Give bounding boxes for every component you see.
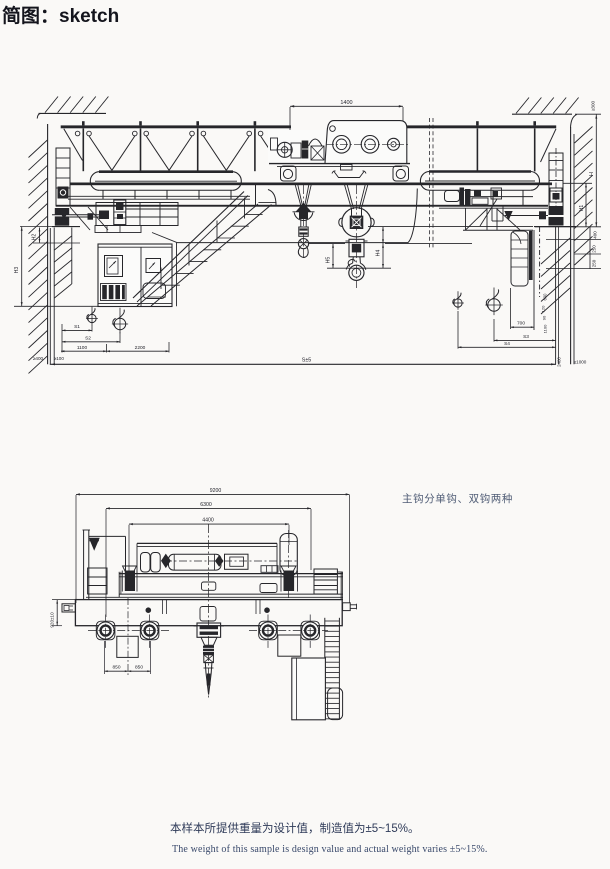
svg-text:2200: 2200 <box>135 345 146 351</box>
svg-text:90: 90 <box>542 315 547 320</box>
svg-text:S3: S3 <box>523 334 529 340</box>
svg-text:850: 850 <box>135 665 143 671</box>
svg-text:≥1000: ≥1000 <box>574 359 587 364</box>
svg-text:H1: H1 <box>579 205 585 212</box>
svg-text:S1: S1 <box>74 324 80 330</box>
svg-text:S2: S2 <box>85 335 91 341</box>
svg-text:1100: 1100 <box>543 324 548 333</box>
svg-text:S±5: S±5 <box>302 358 312 364</box>
svg-text:4400: 4400 <box>202 518 214 524</box>
svg-text:H4: H4 <box>376 250 382 257</box>
svg-text:850: 850 <box>112 665 120 671</box>
svg-text:S4: S4 <box>504 341 510 347</box>
svg-text:6300: 6300 <box>200 502 212 508</box>
svg-text:≥300: ≥300 <box>591 100 596 111</box>
svg-text:250: 250 <box>592 259 597 267</box>
svg-text:9200: 9200 <box>210 488 222 494</box>
svg-text:主钩分单钩、双钩两种: 主钩分单钩、双钩两种 <box>402 492 513 505</box>
svg-text:H2: H2 <box>32 234 38 241</box>
svg-text:H3: H3 <box>14 267 20 274</box>
svg-text:本样本所提供重量为设计值，制造值为±5~15%。: 本样本所提供重量为设计值，制造值为±5~15%。 <box>170 821 419 835</box>
svg-text:700: 700 <box>517 321 525 327</box>
svg-text:≥100: ≥100 <box>54 356 65 361</box>
svg-text:≥400: ≥400 <box>33 356 44 361</box>
svg-text:250: 250 <box>592 245 597 253</box>
svg-text:920±10: 920±10 <box>50 612 55 628</box>
svg-text:H5: H5 <box>326 257 332 264</box>
svg-text:1400: 1400 <box>340 100 352 106</box>
svg-text:1100: 1100 <box>77 345 88 351</box>
svg-text:H: H <box>589 172 595 176</box>
svg-text:The weight of this sample is: The weight of this sample is design valu… <box>172 844 488 855</box>
svg-text:600: 600 <box>543 293 548 301</box>
svg-text:120: 120 <box>541 305 546 312</box>
svg-text:400: 400 <box>593 231 598 239</box>
svg-text:2400: 2400 <box>557 357 562 367</box>
svg-text:简图：sketch: 简图：sketch <box>2 4 119 27</box>
